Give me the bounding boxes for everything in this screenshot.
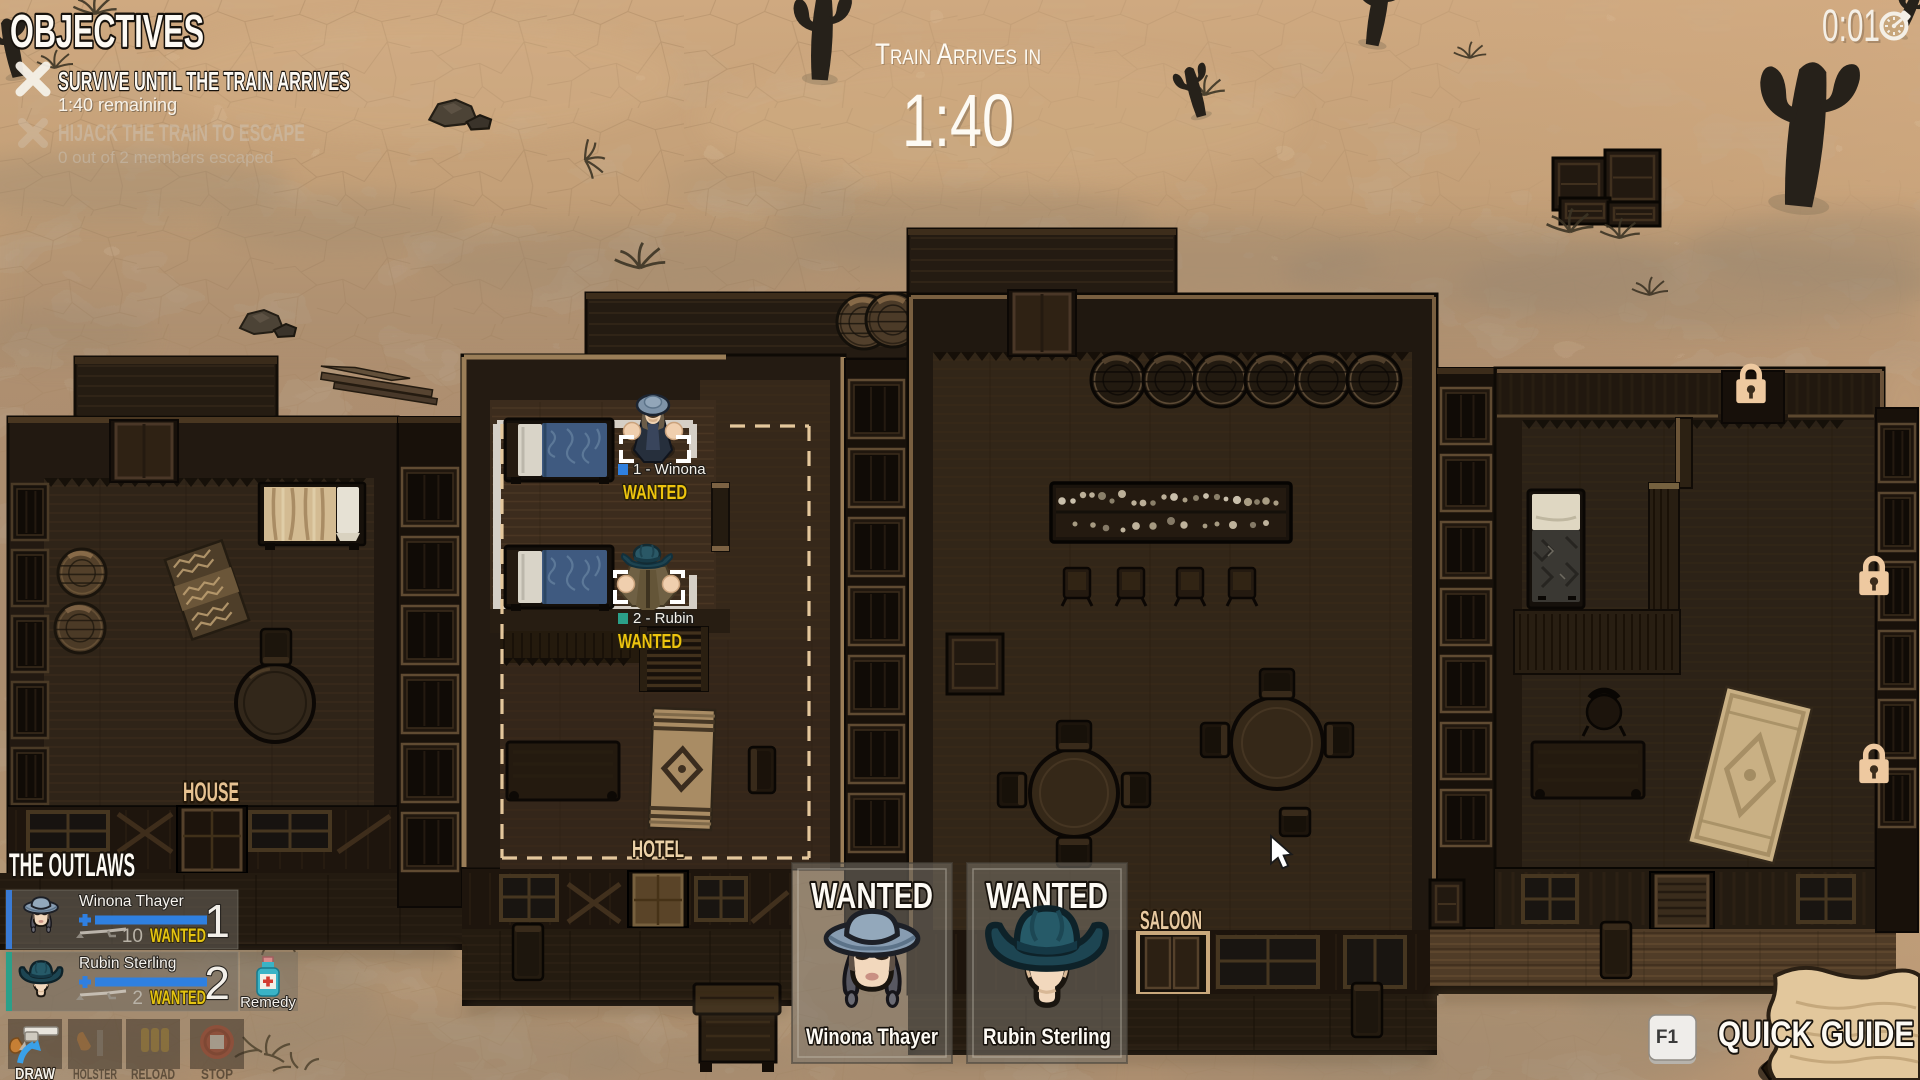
svg-text:1 - Winona: 1 - Winona xyxy=(633,461,706,478)
svg-text:WANTED: WANTED xyxy=(623,482,687,504)
svg-text:RELOAD: RELOAD xyxy=(131,1066,175,1080)
svg-text:Rubin Sterling: Rubin Sterling xyxy=(79,955,176,972)
svg-text:DRAW: DRAW xyxy=(15,1066,56,1080)
svg-text:2: 2 xyxy=(132,988,143,1009)
svg-text:Train Arrives in: Train Arrives in xyxy=(875,38,1041,71)
svg-text:HOUSE: HOUSE xyxy=(183,777,239,807)
svg-text:0 out of 2 members escaped: 0 out of 2 members escaped xyxy=(58,148,273,167)
svg-text:HIJACK THE TRAIN TO ESCAPE: HIJACK THE TRAIN TO ESCAPE xyxy=(58,120,305,147)
svg-text:1:40 remaining: 1:40 remaining xyxy=(58,95,177,115)
svg-text:1: 1 xyxy=(204,895,230,947)
svg-text:WANTED: WANTED xyxy=(150,988,206,1009)
svg-text:OBJECTIVES: OBJECTIVES xyxy=(10,5,204,57)
svg-text:Winona Thayer: Winona Thayer xyxy=(79,893,184,910)
svg-text:10: 10 xyxy=(122,926,143,947)
svg-text:THE OUTLAWS: THE OUTLAWS xyxy=(9,847,135,883)
svg-text:Rubin Sterling: Rubin Sterling xyxy=(983,1024,1111,1049)
svg-text:2 - Rubin: 2 - Rubin xyxy=(633,610,694,627)
svg-text:HOTEL: HOTEL xyxy=(632,836,684,863)
svg-text:Winona Thayer: Winona Thayer xyxy=(806,1024,938,1049)
svg-text:Remedy: Remedy xyxy=(240,994,296,1011)
svg-text:WANTED: WANTED xyxy=(150,926,206,947)
svg-text:F1: F1 xyxy=(1656,1027,1679,1048)
svg-text:1:40: 1:40 xyxy=(902,79,1014,162)
svg-text:WANTED: WANTED xyxy=(618,631,682,653)
svg-text:HOLSTER: HOLSTER xyxy=(73,1066,117,1080)
svg-text:STOP: STOP xyxy=(201,1066,233,1080)
svg-text:0:01: 0:01 xyxy=(1822,0,1880,51)
svg-text:QUICK GUIDE: QUICK GUIDE xyxy=(1718,1015,1914,1054)
svg-text:2: 2 xyxy=(204,957,230,1009)
svg-text:SURVIVE UNTIL THE TRAIN ARRIVE: SURVIVE UNTIL THE TRAIN ARRIVES xyxy=(58,66,350,96)
